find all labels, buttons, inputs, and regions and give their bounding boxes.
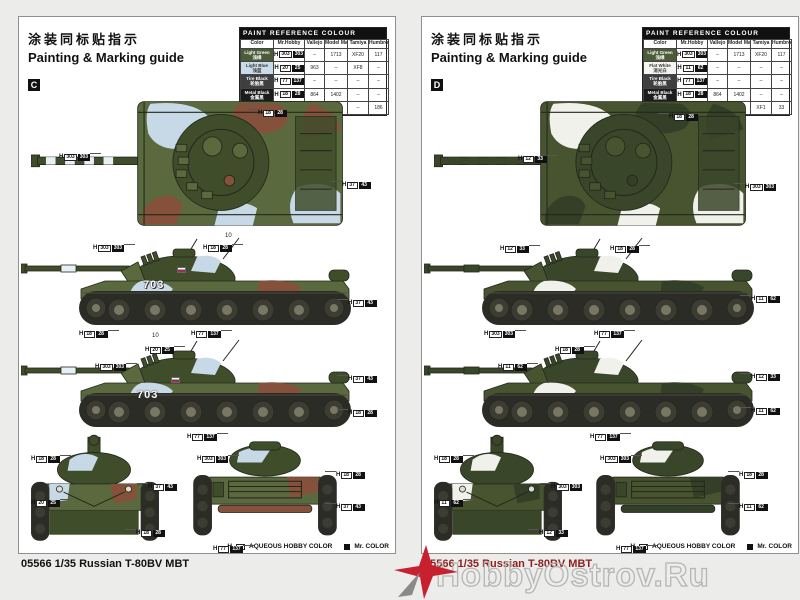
russian-flag-decal [171, 377, 180, 383]
vallejo-cell: – [305, 75, 325, 88]
vallejo-cell: – [305, 48, 325, 61]
paint-table-column: Model Master [728, 40, 751, 49]
paint-callout: H303303 [197, 447, 239, 465]
turret-number-decal: 703 [137, 389, 158, 401]
paint-callout: H2025 [31, 491, 71, 509]
humbrol-cell: 186 [369, 101, 389, 114]
paint-callout: H3743 [337, 291, 377, 309]
paint-table-column: Tamiya [348, 40, 369, 49]
tank-side-view-1 [21, 233, 351, 333]
paint-table-column: Vallejo [708, 40, 728, 49]
paint-callout: H303303 [600, 447, 642, 465]
paint-callout: H1162 [740, 287, 780, 305]
tamiya-cell: – [751, 61, 772, 74]
kit-title: 05566 1/35 Russian T-80BV MBT [21, 558, 189, 570]
paint-callout: H77137 [616, 537, 657, 555]
tank-side-view-2 [21, 335, 351, 435]
page-title-en: Painting & Marking guide [431, 50, 587, 65]
paint-swatch-cell: Tire Black轮胎黑 [241, 75, 274, 88]
tank-top-view [434, 93, 754, 234]
mr-color-box-icon [344, 544, 350, 550]
paint-table-row: Tire Black轮胎黑H77137–––– [644, 75, 792, 88]
paint-callout: H1162 [434, 491, 474, 509]
paint-callout: H77137 [594, 322, 635, 340]
humbrol-cell: – [369, 61, 389, 74]
paint-callout: H1233 [500, 237, 540, 255]
page-header: 涂装同标贴指示 Painting & Marking guide [28, 29, 184, 65]
humbrol-cell: 117 [772, 48, 792, 61]
paint-callout: H1828 [325, 463, 365, 481]
paint-callout: H1828 [203, 236, 243, 254]
paint-callout: H1233 [518, 147, 558, 165]
humbrol-cell: 117 [369, 48, 389, 61]
paint-table-column: Humbrol [772, 40, 792, 49]
paint-callout: H303303 [95, 355, 137, 373]
paint-table-column: Humbrol [369, 40, 389, 49]
paint-table-title: PAINT REFERENCE COLOUR [240, 28, 386, 39]
watermark-star-icon [392, 545, 458, 599]
paint-callout: H3743 [137, 475, 177, 493]
humbrol-cell: – [772, 75, 792, 88]
paint-swatch-cell: Light Green浅绿 [644, 48, 677, 61]
paint-table-column: Tamiya [751, 40, 772, 49]
paint-callout: H3743 [325, 495, 365, 513]
model-master-cell: – [728, 61, 751, 74]
humbrol-cell: – [772, 61, 792, 74]
paint-callout: H1828 [658, 105, 698, 123]
paint-callout: H77137 [187, 425, 228, 443]
vallejo-cell: – [708, 61, 728, 74]
vallejo-cell: – [708, 75, 728, 88]
model-master-cell: – [728, 75, 751, 88]
paint-callout: H303303 [93, 236, 135, 254]
paint-callout: H1233 [740, 365, 780, 383]
legend-aqueous-label: AQUEOUS HOBBY COLOR [249, 543, 332, 550]
humbrol-cell: 33 [772, 101, 792, 114]
tank-top-view [31, 93, 351, 234]
page-title-zh: 涂装同标贴指示 [431, 29, 587, 48]
paint-callout: H303303 [734, 175, 776, 193]
tamiya-cell: – [751, 75, 772, 88]
tamiya-cell: – [348, 75, 369, 88]
model-master-cell: – [325, 61, 348, 74]
paint-callout: H1828 [247, 101, 287, 119]
mr-hobby-cell: H2025 [274, 61, 305, 74]
paint-table-column: Color [241, 40, 274, 49]
mr-color-box-icon [747, 544, 753, 550]
legend-mr-color-label: Mr. COLOR [354, 543, 389, 550]
paint-callout: H303303 [59, 145, 101, 163]
tamiya-cell: XF20 [751, 48, 772, 61]
paint-table-column: Mr.Hobby [274, 40, 305, 49]
mr-hobby-cell: H303303 [274, 48, 305, 61]
paint-callout: H1162 [740, 399, 780, 417]
page-title-zh: 涂装同标贴指示 [28, 29, 184, 48]
tamiya-cell: XF20 [348, 48, 369, 61]
paint-callout: H1162 [498, 355, 538, 373]
scheme-letter-badge: C [28, 79, 40, 91]
paint-callout: H1828 [79, 322, 119, 340]
paint-swatch-cell: Flat White消光白 [644, 61, 677, 74]
vallejo-cell: – [708, 48, 728, 61]
paint-swatch-cell: Light Blue浅蓝 [241, 61, 274, 74]
legend-aqueous-label: AQUEOUS HOBBY COLOR [652, 543, 735, 550]
paint-table-header-row: ColorMr.HobbyVallejoModel MasterTamiyaHu… [644, 40, 792, 49]
mr-hobby-cell: H77137 [677, 75, 708, 88]
paint-callout: H1828 [434, 447, 474, 465]
model-master-cell: 1713 [728, 48, 751, 61]
model-master-cell: 1713 [325, 48, 348, 61]
paint-callout: H1162 [728, 495, 768, 513]
humbrol-cell: – [772, 88, 792, 101]
paint-callout: H1828 [610, 237, 650, 255]
paint-callout: H1828 [728, 463, 768, 481]
paint-table-title: PAINT REFERENCE COLOUR [643, 28, 789, 39]
paint-callout: H3743 [337, 367, 377, 385]
humbrol-cell: – [369, 88, 389, 101]
paint-table-column: Vallejo [305, 40, 325, 49]
paint-callout: H1828 [555, 338, 595, 356]
model-master-cell: – [325, 75, 348, 88]
paint-swatch-cell: Light Green浅绿 [241, 48, 274, 61]
paint-table-header-row: ColorMr.HobbyVallejoModel MasterTamiyaHu… [241, 40, 389, 49]
paint-callout: H1828 [125, 521, 165, 539]
tamiya-cell: XF8 [348, 61, 369, 74]
paint-table-column: Mr.Hobby [677, 40, 708, 49]
paint-callout: H2025 [145, 338, 185, 356]
paint-callout: H303303 [540, 475, 582, 493]
mr-hobby-cell: H303303 [677, 48, 708, 61]
tank-side-view-1 [424, 233, 754, 333]
paint-table-row: Flat White消光白H1162–––– [644, 61, 792, 74]
paint-table-row: Light Green浅绿H303303–1713XF20117 [644, 48, 792, 61]
paint-table-row: Light Green浅绿H303303–1713XF20117 [241, 48, 389, 61]
paint-callout: H303303 [484, 322, 526, 340]
scheme-letter-badge: D [431, 79, 443, 91]
decal-number-label: 10 [152, 333, 159, 339]
russian-flag-decal [177, 267, 186, 273]
paint-callout: H1828 [31, 447, 71, 465]
paint-callout: H1828 [337, 401, 377, 419]
paint-table-column: Color [644, 40, 677, 49]
paint-callout: H3743 [331, 173, 371, 191]
watermark-text: HobbyOstrov.Ru [436, 556, 710, 594]
paint-callout: H77137 [213, 537, 254, 555]
legend-mr-color-label: Mr. COLOR [757, 543, 792, 550]
page-header: 涂装同标贴指示 Painting & Marking guide [431, 29, 587, 65]
page-title-en: Painting & Marking guide [28, 50, 184, 65]
paint-callout: H1233 [528, 521, 568, 539]
paint-table-row: Light Blue浅蓝H2025963–XF8– [241, 61, 389, 74]
paint-table-column: Model Master [325, 40, 348, 49]
humbrol-cell: – [369, 75, 389, 88]
turret-number-decal: 703 [143, 279, 164, 291]
mr-hobby-cell: H77137 [274, 75, 305, 88]
paint-table-row: Tire Black轮胎黑H77137–––– [241, 75, 389, 88]
paint-callout: H77137 [191, 322, 232, 340]
guide-page-d: 涂装同标贴指示 Painting & Marking guide D PAINT… [421, 16, 799, 554]
mr-hobby-cell: H1162 [677, 61, 708, 74]
decal-number-label: 10 [225, 233, 232, 239]
guide-page-c: 涂装同标贴指示 Painting & Marking guide C PAINT… [18, 16, 396, 554]
paint-callout: H77137 [590, 425, 631, 443]
vallejo-cell: 963 [305, 61, 325, 74]
paint-swatch-cell: Tire Black轮胎黑 [644, 75, 677, 88]
